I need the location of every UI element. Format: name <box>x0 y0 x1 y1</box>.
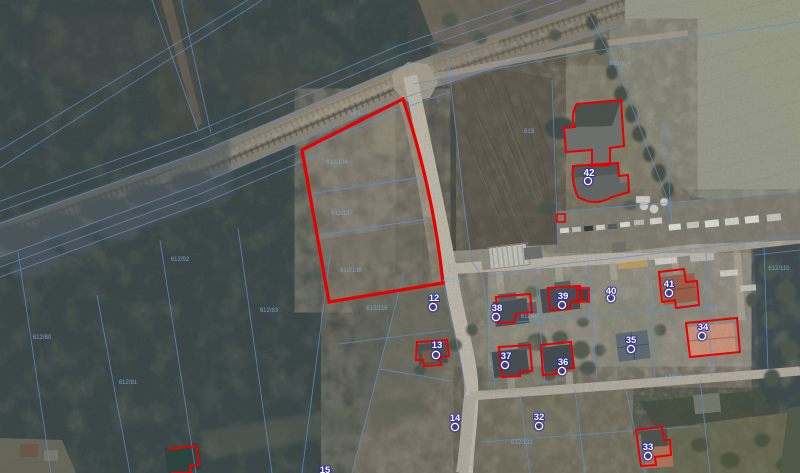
svg-text:32: 32 <box>534 412 545 423</box>
svg-text:612/80: 612/80 <box>33 335 52 341</box>
svg-text:38: 38 <box>492 303 503 314</box>
svg-text:40: 40 <box>606 286 617 297</box>
svg-text:15: 15 <box>320 465 331 473</box>
svg-text:39: 39 <box>558 291 569 302</box>
svg-text:612/110: 612/110 <box>768 266 790 272</box>
svg-text:612/116: 612/116 <box>366 306 388 312</box>
svg-text:612/92: 612/92 <box>171 257 190 263</box>
svg-text:14: 14 <box>450 413 461 424</box>
svg-text:42: 42 <box>583 168 595 179</box>
svg-text:612/114: 612/114 <box>609 61 631 67</box>
svg-text:613: 613 <box>524 129 535 135</box>
svg-text:33: 33 <box>643 442 654 453</box>
svg-text:13: 13 <box>432 340 443 351</box>
svg-text:612/138: 612/138 <box>340 268 362 274</box>
svg-text:34: 34 <box>698 322 709 333</box>
svg-text:612/81: 612/81 <box>119 380 138 386</box>
svg-text:612/131: 612/131 <box>511 440 533 446</box>
svg-text:41: 41 <box>664 279 675 290</box>
svg-text:37: 37 <box>501 351 512 362</box>
svg-text:40/101: 40/101 <box>443 278 462 284</box>
svg-text:612/75: 612/75 <box>665 375 684 381</box>
svg-text:12: 12 <box>429 293 440 304</box>
svg-text:612/136: 612/136 <box>326 160 348 166</box>
svg-text:612/97: 612/97 <box>521 314 540 320</box>
svg-text:612/137: 612/137 <box>331 211 353 217</box>
svg-text:35: 35 <box>626 335 637 346</box>
svg-text:18/1: 18/1 <box>349 111 361 117</box>
svg-text:36: 36 <box>558 357 569 368</box>
svg-text:612/83: 612/83 <box>260 308 279 314</box>
